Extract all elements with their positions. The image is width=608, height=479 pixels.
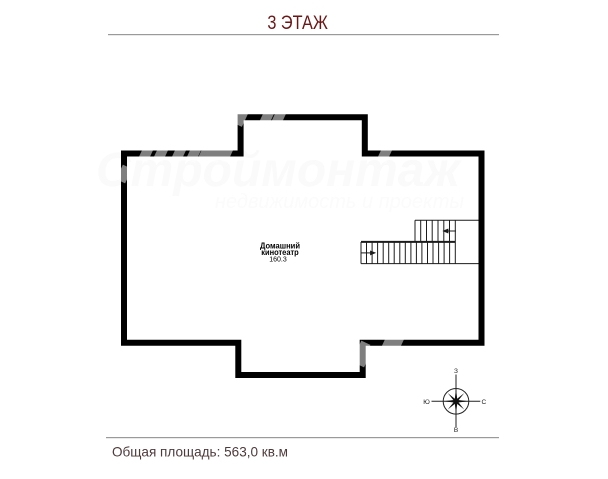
svg-text:С: С [481,399,486,406]
svg-text:160.3: 160.3 [269,256,287,263]
svg-text:Ю: Ю [423,399,430,406]
svg-text:Общая площадь: 563,0 кв.м: Общая площадь: 563,0 кв.м [112,443,288,459]
svg-text:В: В [454,427,458,434]
svg-text:недвижимость и проекты: недвижимость и проекты [215,191,464,213]
svg-text:З: З [454,368,458,375]
svg-text:3 ЭТАЖ: 3 ЭТАЖ [267,13,328,34]
